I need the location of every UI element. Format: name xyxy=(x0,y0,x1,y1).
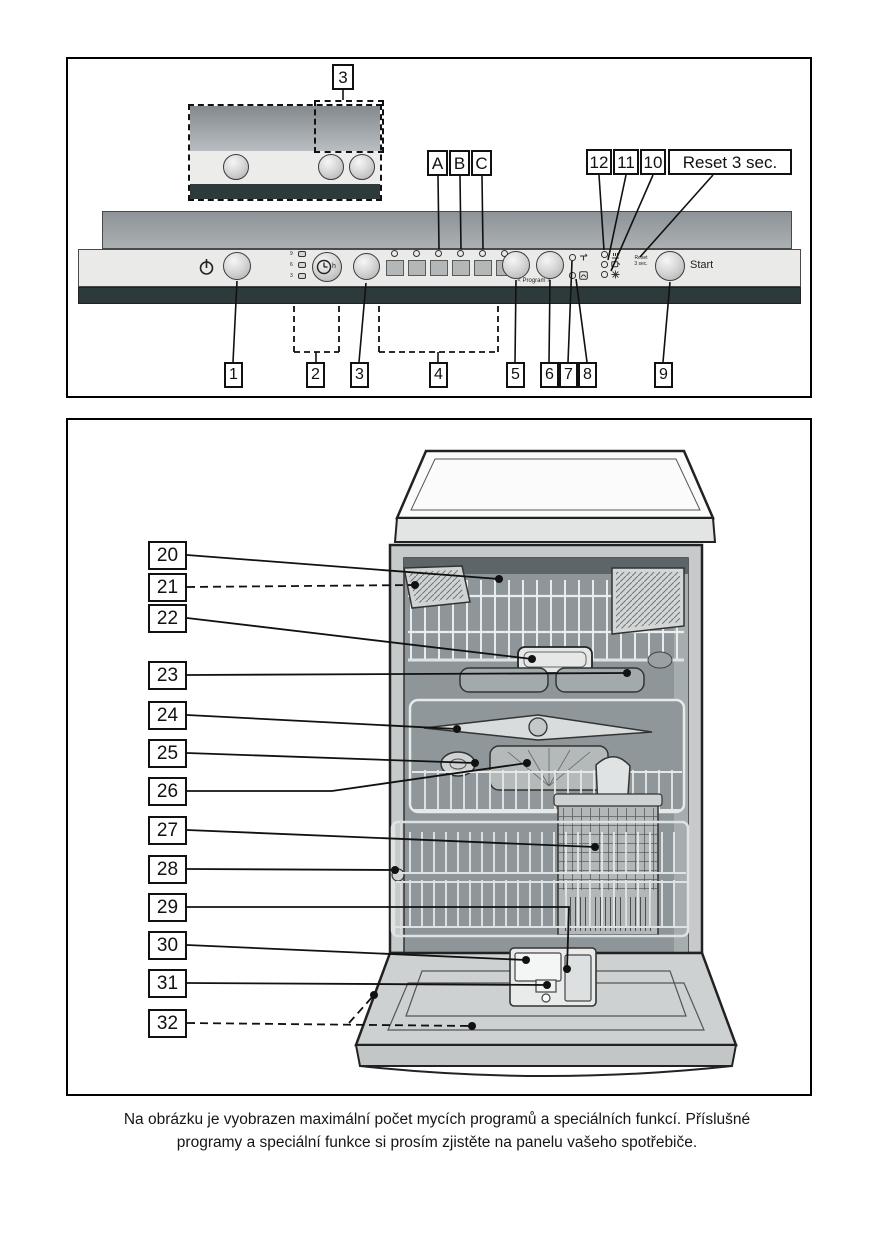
callout-box-7: 7 xyxy=(559,362,578,388)
inset-option-zone xyxy=(314,100,384,153)
salt-led xyxy=(569,272,576,279)
delay-timer-button: h xyxy=(312,252,342,282)
callout-box-inset-3: 3 xyxy=(332,64,354,90)
program-prev-button xyxy=(502,251,530,279)
callout-box-31: 31 xyxy=(148,969,187,998)
caption-line-2: programy a speciální funkce si prosím zj… xyxy=(40,1131,834,1154)
program-button-1 xyxy=(386,260,404,276)
delay-led-3h xyxy=(298,273,306,279)
program-led-3 xyxy=(435,250,442,257)
water-supply-led xyxy=(569,254,576,261)
callout-box-22: 22 xyxy=(148,604,187,633)
callout-box-4: 4 xyxy=(429,362,448,388)
power-icon xyxy=(199,258,214,275)
delay-3h-label: 3 xyxy=(290,274,293,280)
callout-box-23: 23 xyxy=(148,661,187,690)
delay-led-6h xyxy=(298,262,306,268)
callout-box-29: 29 xyxy=(148,893,187,922)
callout-box-reset: Reset 3 sec. xyxy=(668,149,792,175)
inset-button-right xyxy=(349,154,375,180)
rinse-aid-led xyxy=(601,261,608,268)
inset-button-left xyxy=(318,154,344,180)
star-icon xyxy=(611,270,620,279)
program-nav-label: < Program > xyxy=(494,278,574,284)
callout-box-C: C xyxy=(471,150,492,176)
callout-box-5: 5 xyxy=(506,362,525,388)
program-led-2 xyxy=(413,250,420,257)
panel-top-band xyxy=(102,211,792,249)
start-button xyxy=(655,251,685,281)
reset-hint: Reset 3 sec. xyxy=(628,256,654,267)
program-led-5 xyxy=(479,250,486,257)
callout-box-11: 11 xyxy=(613,149,639,175)
water-tap-icon xyxy=(579,253,589,262)
callout-box-32: 32 xyxy=(148,1009,187,1038)
callout-box-A: A xyxy=(427,150,448,176)
program-led-4 xyxy=(457,250,464,257)
drying-led xyxy=(601,251,608,258)
caption-line-1: Na obrázku je vyobrazen maximální počet … xyxy=(40,1108,834,1131)
callout-box-3: 3 xyxy=(350,362,369,388)
callout-box-28: 28 xyxy=(148,855,187,884)
callout-box-9: 9 xyxy=(654,362,673,388)
start-label: Start xyxy=(690,259,713,271)
callout-box-1: 1 xyxy=(224,362,243,388)
option-button-3 xyxy=(353,253,380,280)
program-button-5 xyxy=(474,260,492,276)
end-led xyxy=(601,271,608,278)
figure-caption: Na obrázku je vyobrazen maximální počet … xyxy=(40,1108,834,1155)
manual-page: 9 6 3 h < Program xyxy=(0,0,874,1240)
inset-power-button xyxy=(223,154,249,180)
program-button-4 xyxy=(452,260,470,276)
panel-bottom-band xyxy=(78,287,801,304)
reset-hint-line2: 3 sec. xyxy=(628,262,654,268)
delay-6h-label: 6 xyxy=(290,263,293,269)
drying-icon xyxy=(611,251,620,259)
program-button-2 xyxy=(408,260,426,276)
timer-unit-label: h xyxy=(332,263,336,270)
callout-box-25: 25 xyxy=(148,739,187,768)
callout-box-8: 8 xyxy=(578,362,597,388)
callout-box-2: 2 xyxy=(306,362,325,388)
callout-box-20: 20 xyxy=(148,541,187,570)
salt-icon xyxy=(579,271,588,280)
callout-box-B: B xyxy=(449,150,470,176)
figure-dishwasher-interior: 20 21 22 23 24 25 26 27 28 29 30 31 32 xyxy=(66,418,812,1096)
power-button xyxy=(223,252,251,280)
rinse-aid-icon xyxy=(611,260,621,268)
callout-box-27: 27 xyxy=(148,816,187,845)
callout-box-30: 30 xyxy=(148,931,187,960)
delay-9h-label: 9 xyxy=(290,252,293,258)
program-next-button xyxy=(536,251,564,279)
inset-dark-band xyxy=(190,184,380,199)
delay-led-9h xyxy=(298,251,306,257)
program-button-3 xyxy=(430,260,448,276)
callout-box-12: 12 xyxy=(586,149,612,175)
callout-box-10: 10 xyxy=(640,149,666,175)
clock-icon xyxy=(316,259,332,275)
callout-box-24: 24 xyxy=(148,701,187,730)
callout-box-6: 6 xyxy=(540,362,559,388)
callout-box-21: 21 xyxy=(148,573,187,602)
figure-control-panel: 9 6 3 h < Program xyxy=(66,57,812,398)
callout-box-26: 26 xyxy=(148,777,187,806)
program-led-1 xyxy=(391,250,398,257)
